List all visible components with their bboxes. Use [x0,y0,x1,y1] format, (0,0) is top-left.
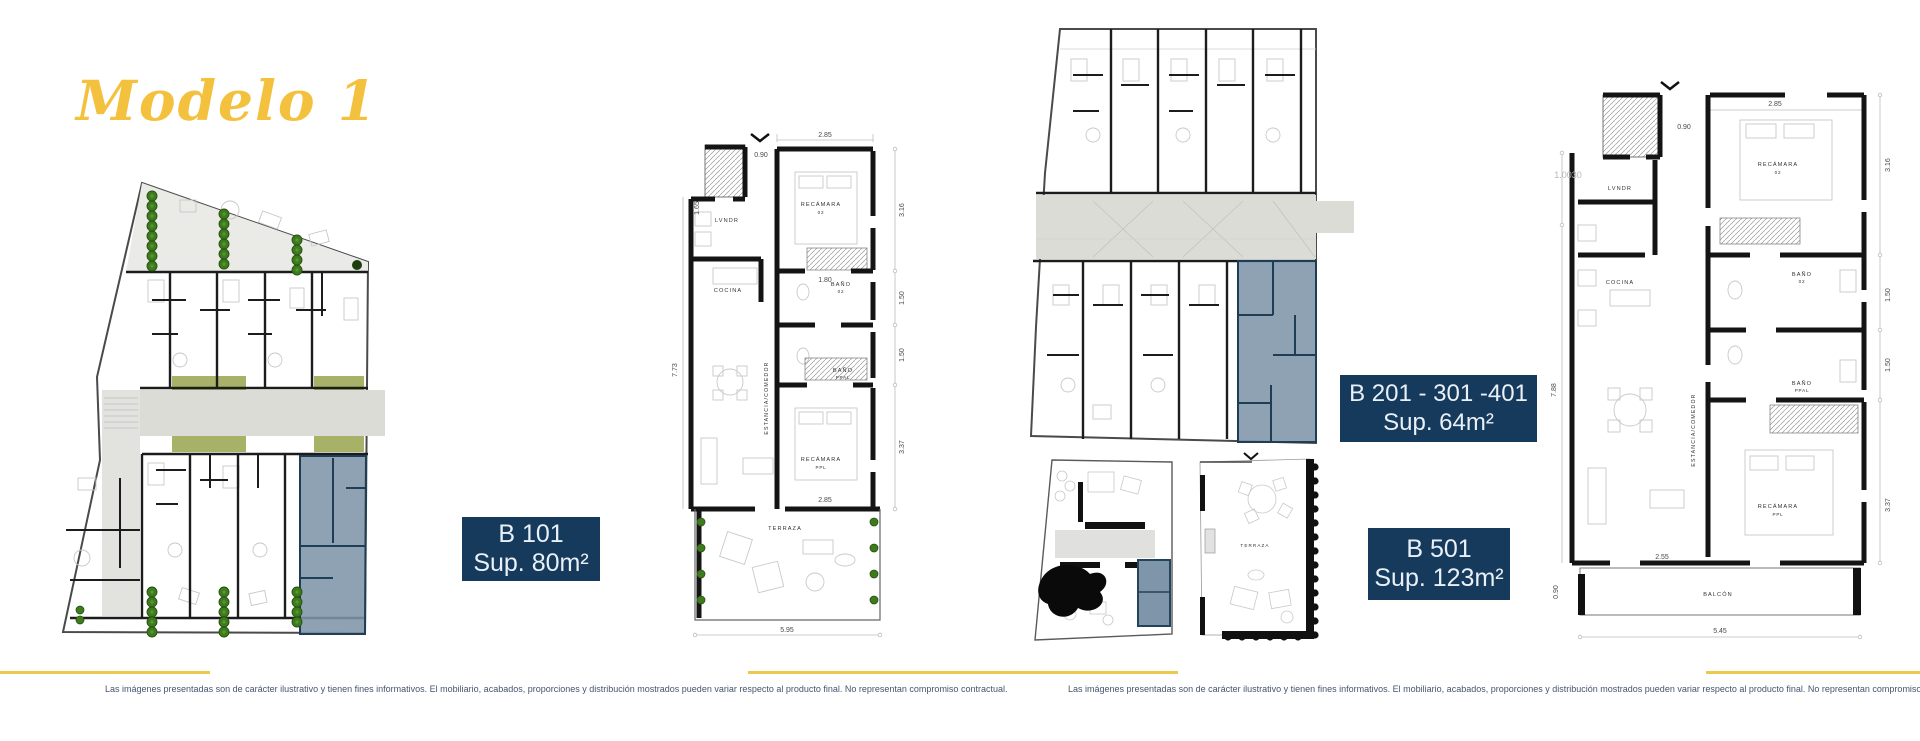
unit-tag-b101-area: Sup. 80m² [462,549,600,579]
svg-text:3.37: 3.37 [1885,498,1892,512]
svg-text:1.0030: 1.0030 [1554,170,1582,180]
svg-text:ESTANCIA/COMEDOR: ESTANCIA/COMEDOR [1691,393,1697,466]
svg-text:TERRAZA: TERRAZA [1240,543,1269,548]
unit-tag-b501-name: B 501 [1368,535,1510,565]
svg-text:BAÑO: BAÑO [833,367,853,374]
unit-plan-b101: LVNDR COCINA ESTANCIA/COMEDOR RECÁMARA 0… [655,120,915,650]
svg-text:COCINA: COCINA [714,288,742,294]
svg-text:7.73: 7.73 [672,363,679,377]
svg-text:TERRAZA: TERRAZA [768,526,802,532]
svg-text:1.50: 1.50 [899,348,906,362]
highlighted-terrace-b501 [1138,560,1170,626]
svg-text:PPL: PPL [1772,512,1783,517]
site-plan-upper [1023,15,1358,447]
gold-divider-center [748,671,1178,674]
entry-arrow-icon [1661,82,1679,89]
highlighted-unit-b201 [1238,261,1316,442]
highlighted-unit-b101 [300,456,366,634]
svg-text:BAÑO: BAÑO [1792,380,1812,387]
svg-text:2.55: 2.55 [1655,554,1669,561]
disclaimer-left: Las imágenes presentadas son de carácter… [105,684,885,694]
svg-text:02: 02 [818,210,825,215]
svg-text:3.16: 3.16 [1885,158,1892,172]
svg-text:LVNDR: LVNDR [1608,186,1632,192]
svg-text:5.45: 5.45 [1713,628,1727,635]
svg-text:5.95: 5.95 [780,627,794,634]
unit-tag-b201: B 201 - 301 -401 Sup. 64m² [1340,375,1537,442]
svg-text:02: 02 [1775,170,1782,175]
unit-tag-b201-area: Sup. 64m² [1340,409,1537,437]
walls [1572,95,1864,563]
svg-text:ESTANCIA/COMEDOR: ESTANCIA/COMEDOR [764,361,770,434]
svg-text:LVNDR: LVNDR [715,218,739,224]
terrace-plan: TERRAZA [1192,447,1332,647]
page-title: Modelo 1 [76,68,378,133]
svg-text:02: 02 [1799,279,1806,284]
svg-text:PPAL: PPAL [836,375,851,380]
svg-text:2.85: 2.85 [1768,101,1782,108]
svg-text:0.90: 0.90 [1677,124,1691,131]
svg-text:1.80: 1.80 [818,277,832,284]
svg-text:RECÁMARA: RECÁMARA [1758,503,1799,510]
svg-text:1.50: 1.50 [899,291,906,305]
entry-arrow-icon [1244,453,1258,459]
svg-text:RECÁMARA: RECÁMARA [801,456,842,463]
gold-divider-left [0,671,210,674]
svg-text:COCINA: COCINA [1606,280,1634,286]
roof-plan [1030,452,1180,647]
svg-text:RECÁMARA: RECÁMARA [801,201,842,208]
unit-tag-b201-name: B 201 - 301 -401 [1340,380,1537,408]
svg-text:1.50: 1.50 [1885,288,1892,302]
gold-divider-right [1706,671,1920,674]
entry-arrow-icon [751,134,769,141]
svg-text:1.65: 1.65 [694,201,701,215]
svg-text:PPAL: PPAL [1795,388,1810,393]
svg-text:3.16: 3.16 [899,203,906,217]
unit-plan-b501: LVNDR COCINA ESTANCIA/COMEDOR RECÁMARA 0… [1550,60,1920,670]
unit-tag-b501: B 501 Sup. 123m² [1368,528,1510,600]
svg-text:0.90: 0.90 [754,152,768,159]
unit-tag-b101: B 101 Sup. 80m² [462,517,600,581]
svg-text:BAÑO: BAÑO [831,281,851,288]
svg-text:1.50: 1.50 [1885,358,1892,372]
disclaimer-right: Las imágenes presentadas son de carácter… [1068,684,1848,694]
svg-text:BAÑO: BAÑO [1792,271,1812,278]
unit-tag-b501-area: Sup. 123m² [1368,564,1510,594]
svg-text:3.37: 3.37 [899,440,906,454]
svg-text:7.88: 7.88 [1551,383,1558,397]
entry-closet-hatch [1603,95,1660,157]
svg-text:2.85: 2.85 [818,132,832,139]
svg-text:RECÁMARA: RECÁMARA [1758,161,1799,168]
site-plan-ground [60,148,395,648]
svg-text:2.85: 2.85 [818,497,832,504]
svg-text:0.90: 0.90 [1553,585,1560,599]
svg-text:BALCÓN: BALCÓN [1703,591,1733,598]
dimension-lines [1560,93,1882,639]
svg-text:02: 02 [838,289,845,294]
svg-text:PPL: PPL [815,465,826,470]
unit-tag-b101-name: B 101 [462,520,600,550]
entry-closet-hatch [705,145,745,197]
